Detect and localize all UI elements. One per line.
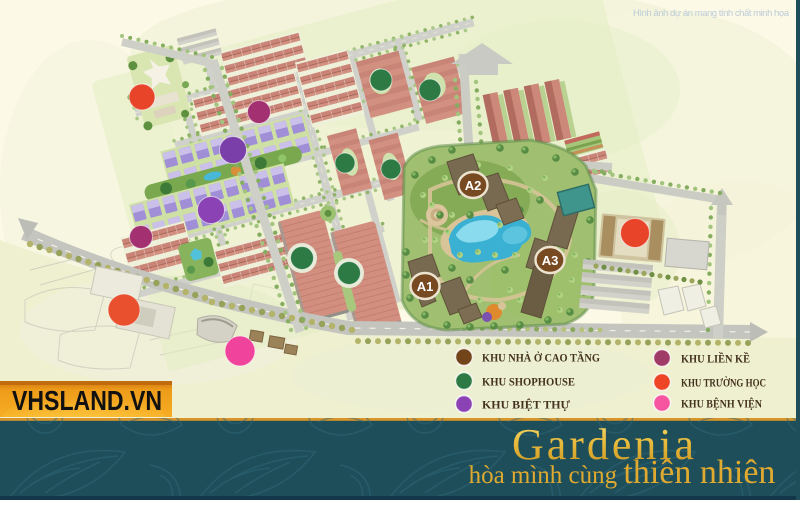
svg-text:KHU TRƯỜNG HỌC: KHU TRƯỜNG HỌC (681, 376, 766, 390)
svg-text:KHU SHOPHOUSE: KHU SHOPHOUSE (482, 377, 575, 389)
svg-text:KHU BIỆT THỰ: KHU BIỆT THỰ (482, 398, 571, 412)
svg-text:A2: A2 (465, 178, 482, 193)
svg-text:VHSLAND.VN: VHSLAND.VN (12, 385, 162, 416)
svg-text:A1: A1 (417, 279, 434, 294)
svg-text:A3: A3 (542, 253, 559, 268)
svg-text:KHU NHÀ Ở CAO TẦNG: KHU NHÀ Ở CAO TẦNG (482, 350, 600, 365)
svg-text:KHU LIỀN KỀ: KHU LIỀN KỀ (681, 351, 750, 366)
svg-text:Hình ảnh dự án mang tính chất: Hình ảnh dự án mang tính chất minh họa (633, 8, 790, 19)
svg-text:KHU BỆNH VIỆN: KHU BỆNH VIỆN (681, 397, 763, 411)
